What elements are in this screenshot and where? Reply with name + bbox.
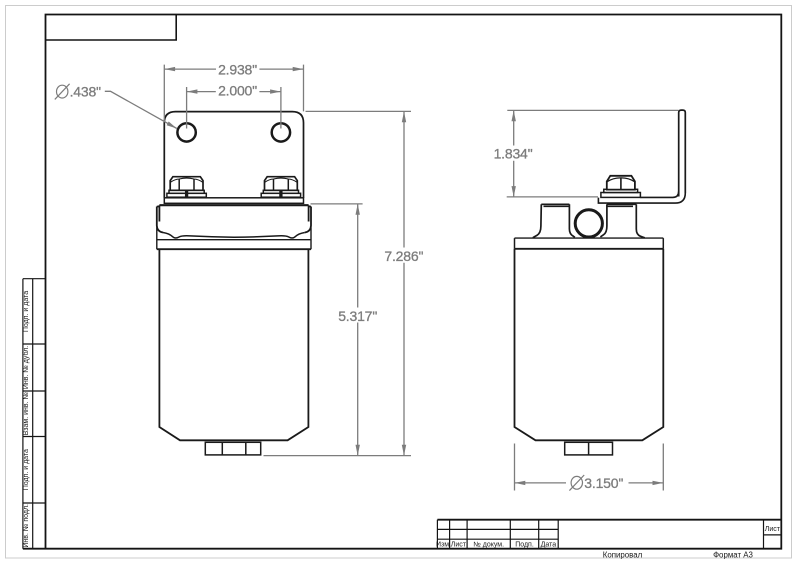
svg-text:Инв. № дубл.: Инв. № дубл. [22,346,30,389]
svg-text:3.150'': 3.150'' [584,475,623,491]
svg-text:Подп.: Подп. [515,541,534,548]
svg-text:Подп. и дата: Подп. и дата [23,291,30,332]
svg-text:1.834'': 1.834'' [494,146,533,162]
svg-text:Взам. инв. №: Взам. инв. № [23,392,30,435]
svg-text:Лист: Лист [451,541,467,548]
svg-text:Изм.: Изм. [436,541,451,548]
svg-text:2.000'': 2.000'' [218,83,257,99]
svg-text:Копировал: Копировал [603,550,643,559]
svg-text:Инв. № подл.: Инв. № подл. [23,504,30,548]
svg-text:.438'': .438'' [70,84,101,100]
svg-text:Дата: Дата [541,541,557,548]
svg-text:Лист: Лист [765,526,781,533]
svg-text:Формат А3: Формат А3 [713,550,753,559]
svg-text:5.317'': 5.317'' [338,308,377,324]
svg-text:№ докум.: № докум. [473,541,504,548]
svg-text:Подп. и дата: Подп. и дата [23,449,30,490]
svg-text:2.938'': 2.938'' [218,61,257,77]
svg-text:7.286'': 7.286'' [384,248,423,264]
